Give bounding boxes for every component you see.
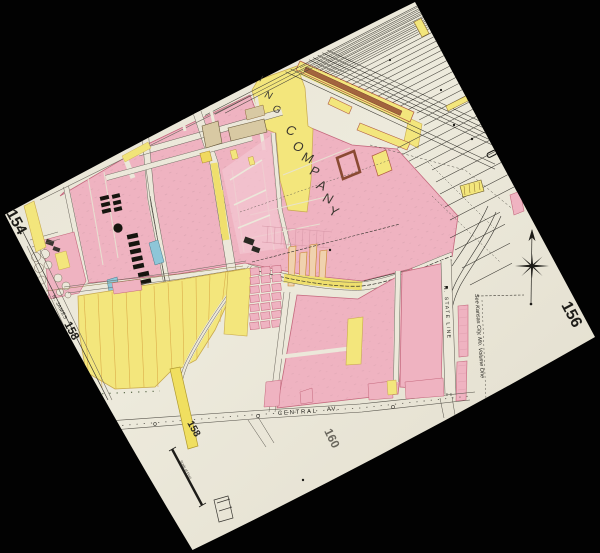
svg-text:AV.: AV. (327, 406, 339, 413)
